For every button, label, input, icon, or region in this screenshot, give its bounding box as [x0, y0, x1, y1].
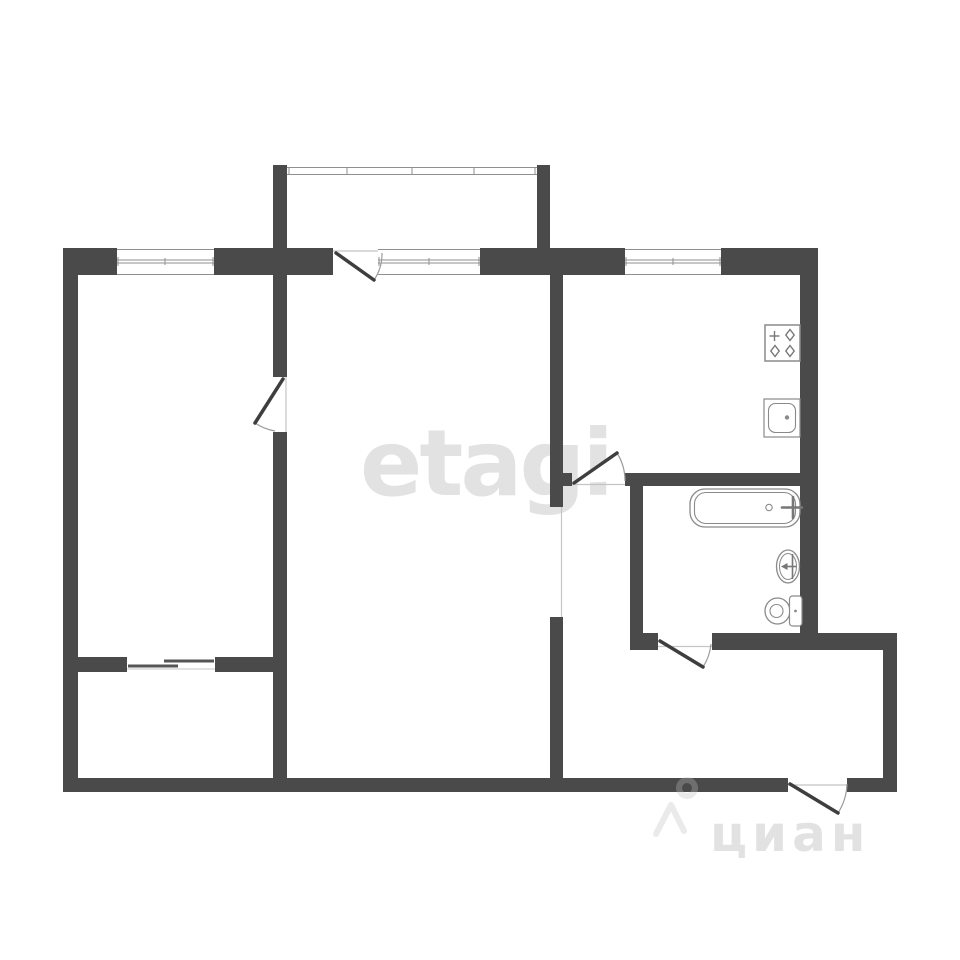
cian-watermark-text: циан — [710, 809, 870, 859]
cian-watermark: циан — [0, 0, 960, 960]
floor-plan-canvas: etagi — [0, 0, 960, 960]
